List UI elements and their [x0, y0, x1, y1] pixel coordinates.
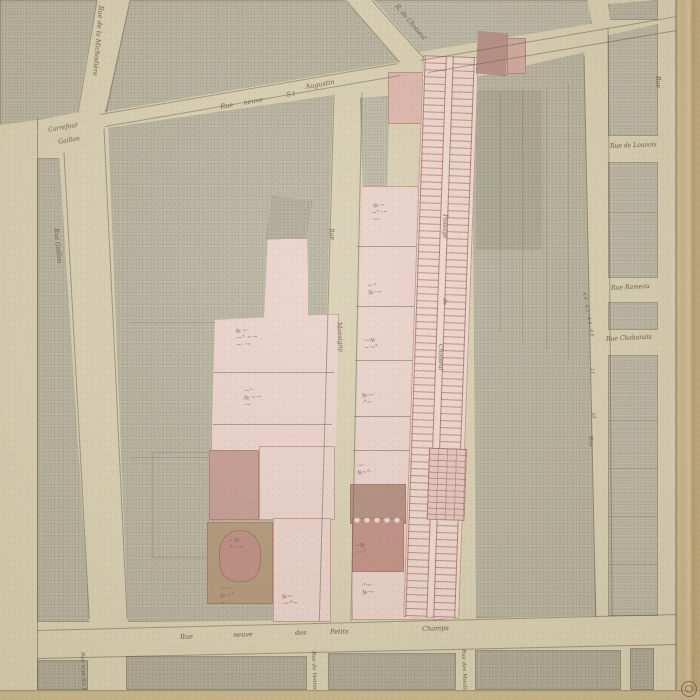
passage-label-word1: Passage: [441, 214, 447, 238]
street-label-petits-champs-w2: neuve: [233, 631, 253, 638]
parcel-line: [130, 457, 212, 458]
street-label-moulins: Rue des Moulins: [460, 649, 467, 696]
lot-line: [608, 212, 658, 213]
plot-annotation: ·~°· № ~·~ ·~·: [243, 387, 262, 409]
passage-stair-block: [427, 448, 467, 521]
lot-line: [608, 516, 658, 517]
street-label-margin-right: Rue: [654, 76, 660, 88]
plot-annotation: ~·° №··~: [368, 283, 382, 298]
paper-edge-bottom: [0, 690, 700, 700]
building-rose-topright-1: [476, 30, 508, 76]
plot-divider: [213, 424, 332, 425]
street-label-st-augustin-w3: S.t: [286, 90, 296, 98]
city-block-bottom-2: [126, 656, 307, 690]
carrefour-gaillon-line2: Gaillon: [58, 136, 80, 146]
lot-line: [608, 420, 658, 421]
plot-annotation: ~·№· ·°~·~: [228, 537, 244, 552]
city-block-bottom-5: [630, 648, 654, 690]
scanned-cadastral-plan: Passage de Choiseul Rue de la Michodière…: [0, 0, 700, 700]
street-label-petits-champs-w5: Champs: [422, 625, 449, 632]
paper-edge-right: [676, 0, 700, 700]
lot-line: [522, 90, 523, 342]
building-rose-west: [209, 450, 259, 520]
street-label-petits-champs-w4: Petits: [330, 628, 349, 635]
plot-annotation: ·~· №~°·: [357, 463, 372, 478]
plot-annotation: ·~№ ~·~°·: [364, 337, 380, 352]
street-label-petits-champs-w1: Rue: [180, 634, 193, 641]
block-shading: [476, 90, 542, 250]
plot-annotation: №~· ·~·°~: [282, 593, 298, 608]
street-label-st-augustin-w2: neuve: [243, 97, 264, 107]
city-block-east-of-passage: [466, 50, 596, 618]
house-numbers-c: 33: [590, 412, 595, 419]
archive-stamp-icon: [681, 681, 697, 697]
faint-parcel-outline: [152, 452, 214, 558]
plot-west-strip: [263, 238, 309, 324]
plan-frame-left: [37, 118, 38, 691]
plot-annotation: ~№· ··~°: [355, 543, 367, 558]
plot-west-main: [211, 314, 339, 460]
stamp-inner-swirl: [685, 685, 693, 693]
city-block-bottom-3: [328, 653, 456, 690]
plot-annotation: ·~·~ №·~° ~··: [219, 586, 235, 608]
city-block-top-left: [0, 0, 98, 126]
plot-annotation: № ~· ·~° ~·~ ~· ·~: [235, 327, 258, 349]
street-label-louvois: Rue de Louvois: [610, 142, 657, 150]
house-numbers-b: 11: [589, 368, 594, 375]
city-block-right-2: [608, 162, 658, 278]
passage-label-word3: Choiseul: [437, 344, 443, 370]
lot-line: [500, 92, 501, 332]
passage-label-word2: de: [441, 298, 447, 305]
parcel-line: [130, 322, 215, 323]
street-label-ste-anne: Rue: [587, 436, 593, 447]
lot-line: [546, 88, 547, 350]
building-brown-west: [207, 522, 273, 604]
city-block-right-4: [608, 355, 658, 616]
street-label-monsigny-w1: Rue: [327, 228, 335, 241]
plot-annotation: №·~· ·°~·: [362, 393, 376, 408]
passage-de-choiseul: Passage de Choiseul: [403, 55, 479, 619]
city-block-bottom-4: [475, 650, 621, 690]
lot-line: [608, 468, 658, 469]
city-block-top-right-corner: [608, 0, 658, 20]
block-middle-gray-top: [360, 96, 390, 190]
street-label-rameau: Rue Rameau: [611, 284, 650, 292]
carrefour-gaillon-line1: Carrefour: [48, 123, 79, 134]
street-label-st-augustin-w1: Rue: [220, 102, 234, 111]
street-label-monsigny-w2: Monsigny: [335, 322, 343, 352]
plot-annotation: ·№·~ ~°··~ ·~·: [371, 202, 388, 224]
arcade-scallops: [352, 518, 404, 525]
street-label-petits-champs-w3: des: [295, 630, 307, 637]
lot-line: [568, 84, 569, 360]
city-block-right-3: [608, 302, 658, 330]
street-label-chabanais: Rue Chabanais: [606, 335, 652, 343]
plot-divider: [214, 372, 334, 373]
lot-line: [608, 564, 658, 565]
plot-annotation: ·°~· №·~: [362, 583, 374, 598]
